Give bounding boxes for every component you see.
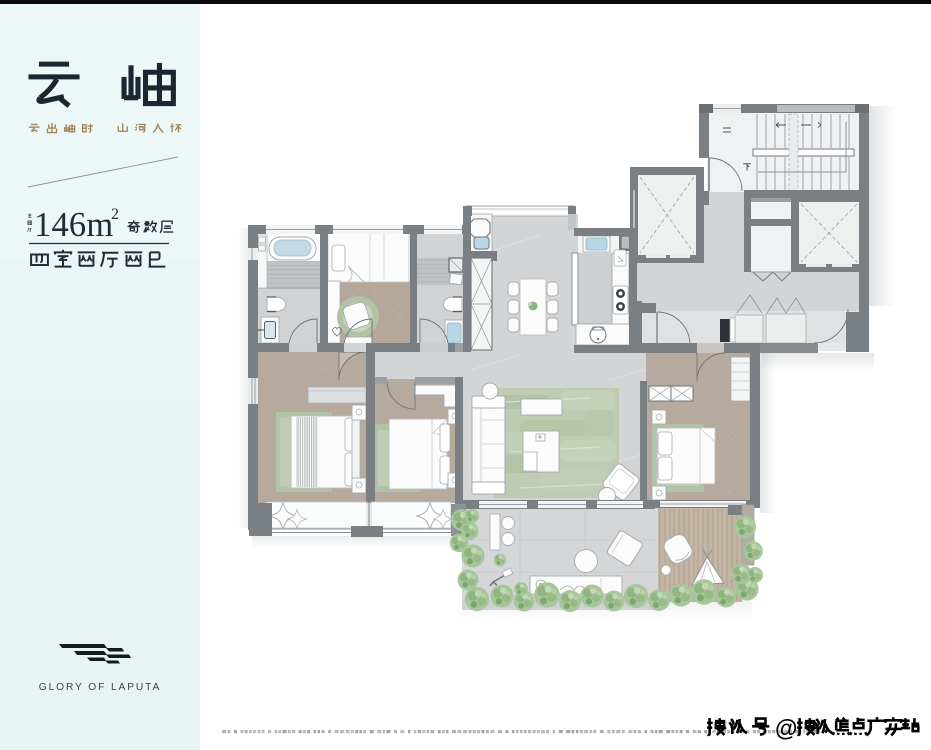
svg-text:2: 2 [111, 206, 119, 223]
svg-text:146m: 146m [34, 206, 113, 244]
svg-text:GLORY OF LAPUTA: GLORY OF LAPUTA [39, 682, 161, 693]
svg-text:@: @ [775, 715, 797, 741]
